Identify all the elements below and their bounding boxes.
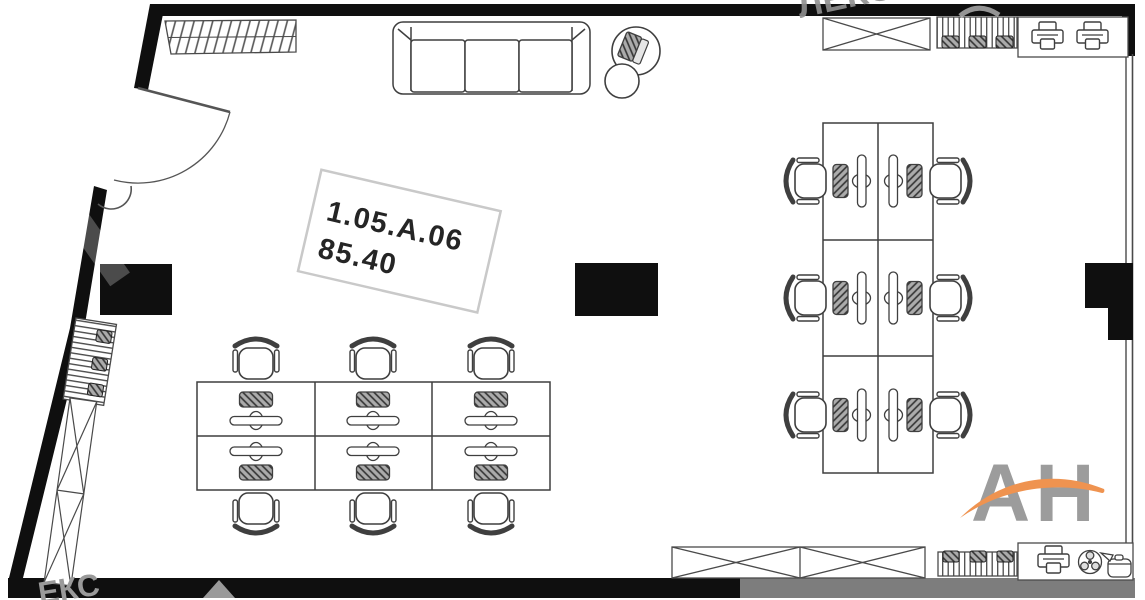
wall-bottom-gray-watermarked [740, 578, 1135, 598]
device-icon [997, 551, 1013, 562]
coffee-point-bottom-right [1018, 543, 1133, 580]
coffee-table-set [605, 27, 660, 98]
device-icon [91, 357, 108, 371]
device-icon [87, 383, 104, 397]
office-chair [468, 493, 514, 533]
wall-top-left-slant [134, 4, 165, 90]
device-icon [96, 329, 113, 343]
floor-plan-page: 1.05.A.06 85.40 [0, 0, 1145, 600]
cabinet-bottom [672, 547, 925, 578]
column-right [1085, 263, 1133, 340]
wall-bottom-black [8, 578, 740, 598]
device-icon [996, 36, 1013, 48]
sofa-cushion [519, 40, 572, 92]
office-chair [350, 339, 396, 379]
round-table-small [605, 64, 639, 98]
radiator-hatched [165, 20, 296, 54]
door-leaf [138, 88, 230, 112]
office-chair [930, 158, 970, 204]
desk-cluster-left [197, 339, 550, 533]
device-icon [942, 36, 959, 48]
column-center [575, 263, 658, 316]
room-label: 1.05.A.06 85.40 [298, 170, 501, 313]
shelf-top-right [937, 17, 1017, 48]
office-chair [786, 392, 826, 438]
agency-logo-text: АН [971, 448, 1099, 539]
fan-icon [1079, 551, 1102, 574]
sofa [393, 22, 590, 94]
floor-plan-drawing: 1.05.A.06 85.40 [0, 0, 1145, 600]
office-chair [786, 158, 826, 204]
office-chair [930, 392, 970, 438]
entrance-door [98, 88, 230, 209]
office-chair [233, 339, 279, 379]
shelf-bottom-right [938, 551, 1017, 576]
device-icon [969, 36, 986, 48]
sofa-cushion [465, 40, 519, 92]
office-chair [786, 275, 826, 321]
desk-cluster-right [786, 123, 970, 473]
office-chair [350, 493, 396, 533]
agency-logo: АН [960, 448, 1104, 539]
office-chair [468, 339, 514, 379]
print-station-top-right [1018, 17, 1128, 57]
cabinet-top-right [823, 18, 930, 50]
office-chair [930, 275, 970, 321]
office-chair [233, 493, 279, 533]
device-icon [943, 551, 959, 562]
structural-columns [100, 263, 1133, 340]
device-icon [970, 551, 986, 562]
door-swing-arc [114, 112, 230, 183]
sofa-cushion [411, 40, 465, 92]
